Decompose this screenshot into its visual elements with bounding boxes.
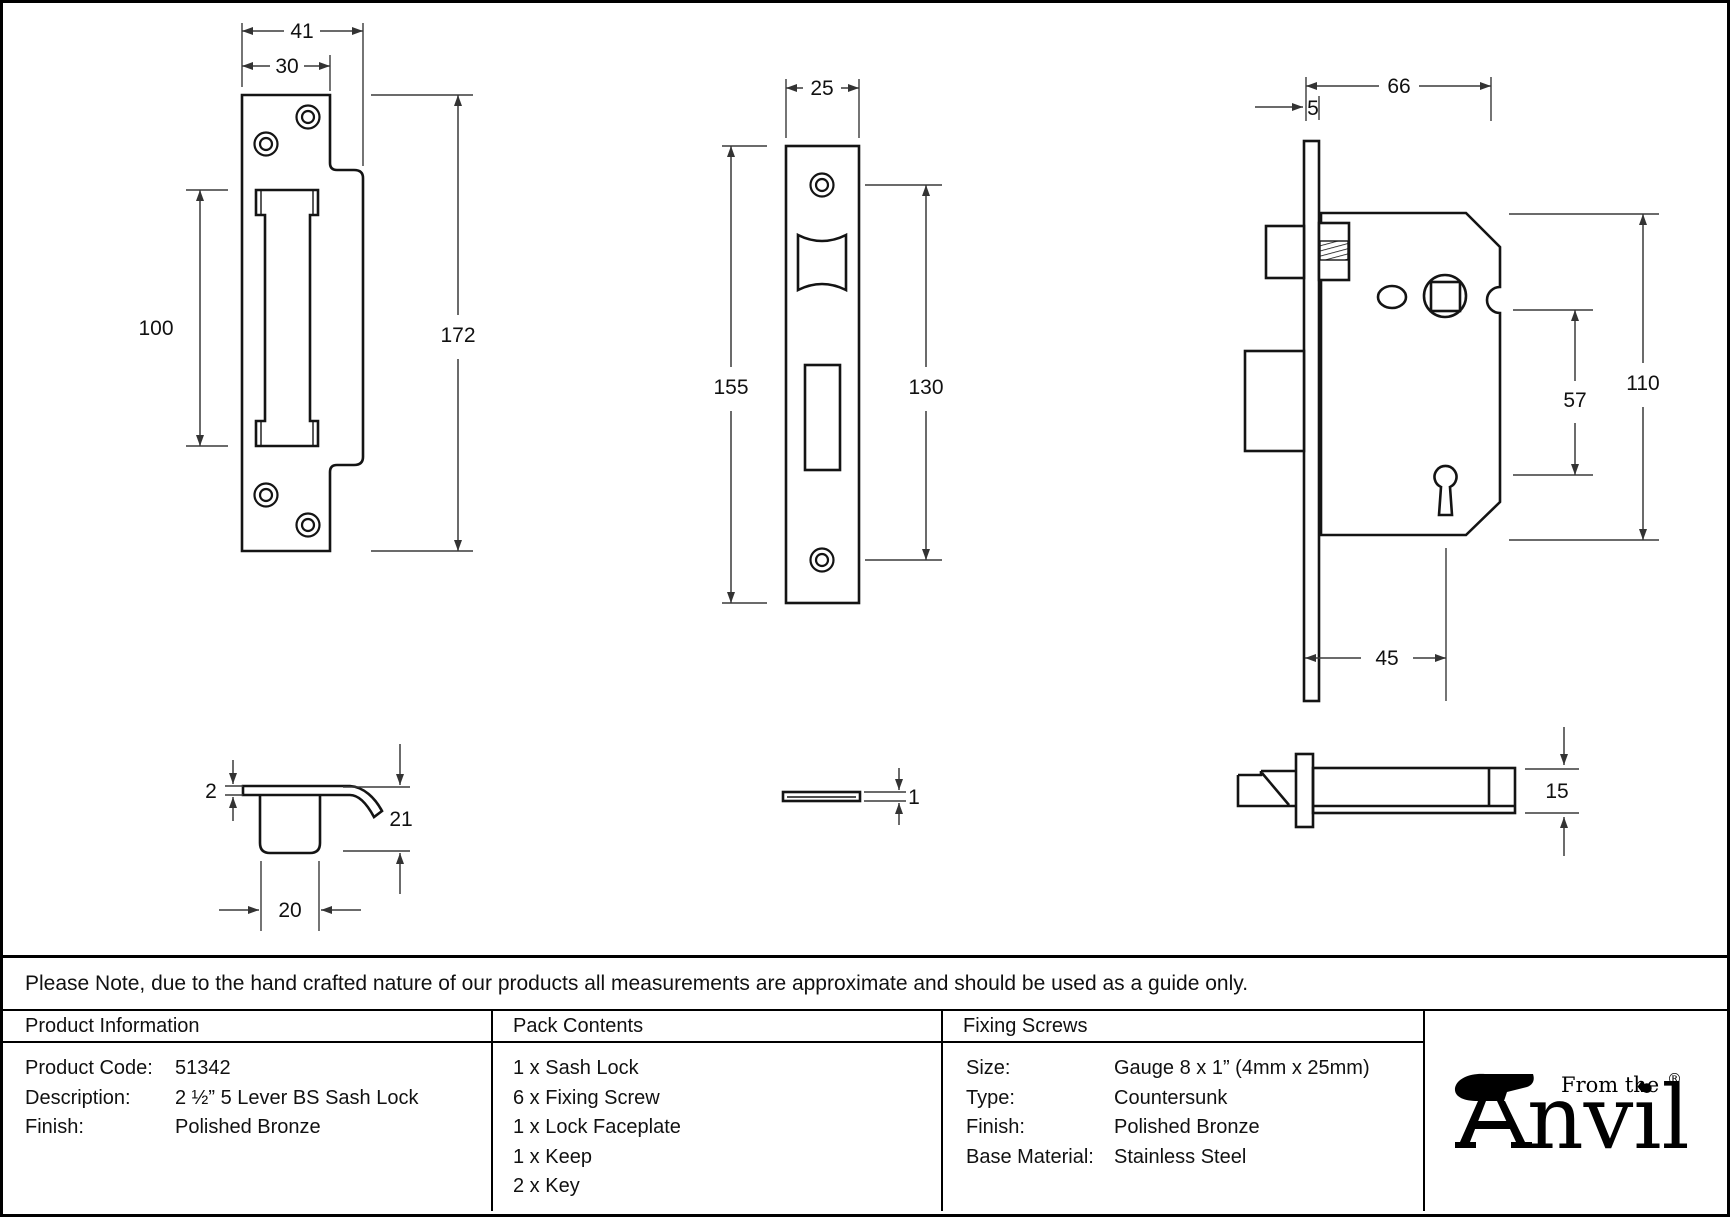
product-info-row: Finish: Polished Bronze bbox=[3, 1113, 491, 1143]
product-code-value: 51342 bbox=[175, 1054, 491, 1084]
keep-profile-box bbox=[260, 795, 320, 853]
measurement-note-text: Please Note, due to the hand crafted nat… bbox=[25, 972, 1248, 996]
follower-slot bbox=[1378, 286, 1406, 308]
screw-finish-value: Polished Bronze bbox=[1114, 1113, 1423, 1143]
fixing-screws-body: Size: Gauge 8 x 1” (4mm x 25mm) Type: Co… bbox=[943, 1043, 1425, 1211]
dim-5-label: 5 bbox=[1307, 97, 1319, 120]
screw-material-value: Stainless Steel bbox=[1114, 1143, 1423, 1173]
dim-110-label: 110 bbox=[1626, 372, 1659, 395]
pack-contents-item: 1 x Lock Faceplate bbox=[513, 1113, 941, 1143]
technical-drawing: 41 30 100 172 bbox=[3, 3, 1727, 955]
finish-value: Polished Bronze bbox=[175, 1113, 491, 1143]
product-code-label: Product Code: bbox=[25, 1054, 175, 1084]
dim-30-label: 30 bbox=[275, 55, 298, 78]
pack-contents-header: Pack Contents bbox=[493, 1011, 943, 1043]
logo-registered-mark: ® bbox=[1667, 1070, 1682, 1088]
dim-155-label: 155 bbox=[713, 376, 748, 399]
fixing-screws-header: Fixing Screws bbox=[943, 1011, 1425, 1043]
latch-spring-hatch bbox=[1320, 241, 1348, 260]
lock-faceplate-edge bbox=[1304, 141, 1319, 701]
latch-bolt-profile bbox=[1238, 771, 1296, 806]
spec-sheet-page: 41 30 100 172 bbox=[0, 0, 1730, 1217]
faceplate-front-view: 25 155 130 bbox=[713, 77, 943, 603]
dim-15-label: 15 bbox=[1545, 780, 1568, 803]
dim-25-label: 25 bbox=[810, 77, 833, 100]
description-value: 2 ½” 5 Lever BS Sash Lock bbox=[175, 1084, 491, 1114]
fixing-screws-row: Size: Gauge 8 x 1” (4mm x 25mm) bbox=[943, 1054, 1423, 1084]
fixing-screws-row: Base Material: Stainless Steel bbox=[943, 1143, 1423, 1173]
faceplate-latch-opening bbox=[798, 235, 846, 290]
dim-1-extensions bbox=[864, 792, 906, 801]
dim-20-label: 20 bbox=[278, 899, 301, 922]
pack-contents-item: 1 x Sash Lock bbox=[513, 1054, 941, 1084]
faceplate-outline bbox=[786, 146, 859, 603]
pack-contents-item: 6 x Fixing Screw bbox=[513, 1084, 941, 1114]
dim-41-label: 41 bbox=[290, 20, 313, 43]
keep-strike-opening bbox=[256, 190, 318, 446]
dim-45-label: 45 bbox=[1375, 647, 1398, 670]
faceplate-profile-bar bbox=[1296, 754, 1313, 827]
dim-172-label: 172 bbox=[440, 324, 475, 347]
lock-side-view: 66 5 110 57 45 bbox=[1245, 75, 1660, 701]
logo-diamond-icon: ♦ bbox=[1635, 1078, 1648, 1096]
brand-logo-cell: nvil From the ♦ ® bbox=[1425, 1011, 1727, 1211]
faceplate-screw-holes bbox=[811, 174, 834, 572]
anvil-icon bbox=[1455, 1074, 1534, 1148]
spec-table: Product Information Pack Contents Fixing… bbox=[3, 1009, 1727, 1211]
fixing-screws-row: Type: Countersunk bbox=[943, 1084, 1423, 1114]
screw-type-label: Type: bbox=[966, 1084, 1114, 1114]
anvil-logo: nvil From the ♦ ® bbox=[1451, 1068, 1701, 1154]
product-information-header: Product Information bbox=[3, 1011, 493, 1043]
product-info-row: Product Code: 51342 bbox=[3, 1054, 491, 1084]
screw-type-value: Countersunk bbox=[1114, 1084, 1423, 1114]
product-info-row: Description: 2 ½” 5 Lever BS Sash Lock bbox=[3, 1084, 491, 1114]
keyhole bbox=[1435, 466, 1457, 515]
screw-material-label: Base Material: bbox=[966, 1143, 1114, 1173]
dim-2-extensions bbox=[225, 786, 243, 795]
keep-plate-outline bbox=[242, 95, 363, 551]
description-label: Description: bbox=[25, 1084, 175, 1114]
product-information-body: Product Code: 51342 Description: 2 ½” 5 … bbox=[3, 1043, 493, 1211]
dim-100-label: 100 bbox=[138, 317, 173, 340]
lock-case-profile-inner-lines bbox=[1313, 768, 1515, 806]
measurement-note: Please Note, due to the hand crafted nat… bbox=[3, 955, 1727, 1009]
keep-profile-plate-and-lip bbox=[243, 786, 382, 817]
dim-57-label: 57 bbox=[1563, 389, 1586, 412]
dim-21-label: 21 bbox=[389, 808, 412, 831]
latch-bolt-outer bbox=[1266, 226, 1304, 278]
keep-profile-view: 2 21 20 bbox=[205, 744, 413, 931]
dim-2-label: 2 bbox=[205, 780, 217, 803]
faceplate-profile-view: 1 bbox=[783, 768, 920, 825]
screw-finish-label: Finish: bbox=[966, 1113, 1114, 1143]
keep-front-view: 41 30 100 172 bbox=[138, 20, 475, 551]
spindle-square bbox=[1431, 282, 1460, 311]
pack-contents-item: 2 x Key bbox=[513, 1172, 941, 1202]
pack-contents-item: 1 x Keep bbox=[513, 1143, 941, 1173]
faceplate-deadbolt-opening bbox=[805, 365, 840, 470]
keep-opening-inner-lines bbox=[261, 191, 313, 445]
finish-label: Finish: bbox=[25, 1113, 175, 1143]
dim-66-label: 66 bbox=[1387, 75, 1410, 98]
dim-1-label: 1 bbox=[908, 786, 920, 809]
screw-size-label: Size: bbox=[966, 1054, 1114, 1084]
dim-100-extensions bbox=[186, 190, 228, 446]
pack-contents-body: 1 x Sash Lock 6 x Fixing Screw 1 x Lock … bbox=[493, 1043, 943, 1211]
dim-130-extensions bbox=[865, 185, 942, 560]
fixing-screws-row: Finish: Polished Bronze bbox=[943, 1113, 1423, 1143]
lock-profile-view: 15 bbox=[1238, 727, 1579, 856]
deadbolt-outer bbox=[1245, 351, 1304, 451]
screw-size-value: Gauge 8 x 1” (4mm x 25mm) bbox=[1114, 1054, 1423, 1084]
dim-155-extensions bbox=[722, 146, 767, 603]
dim-130-label: 130 bbox=[908, 376, 943, 399]
